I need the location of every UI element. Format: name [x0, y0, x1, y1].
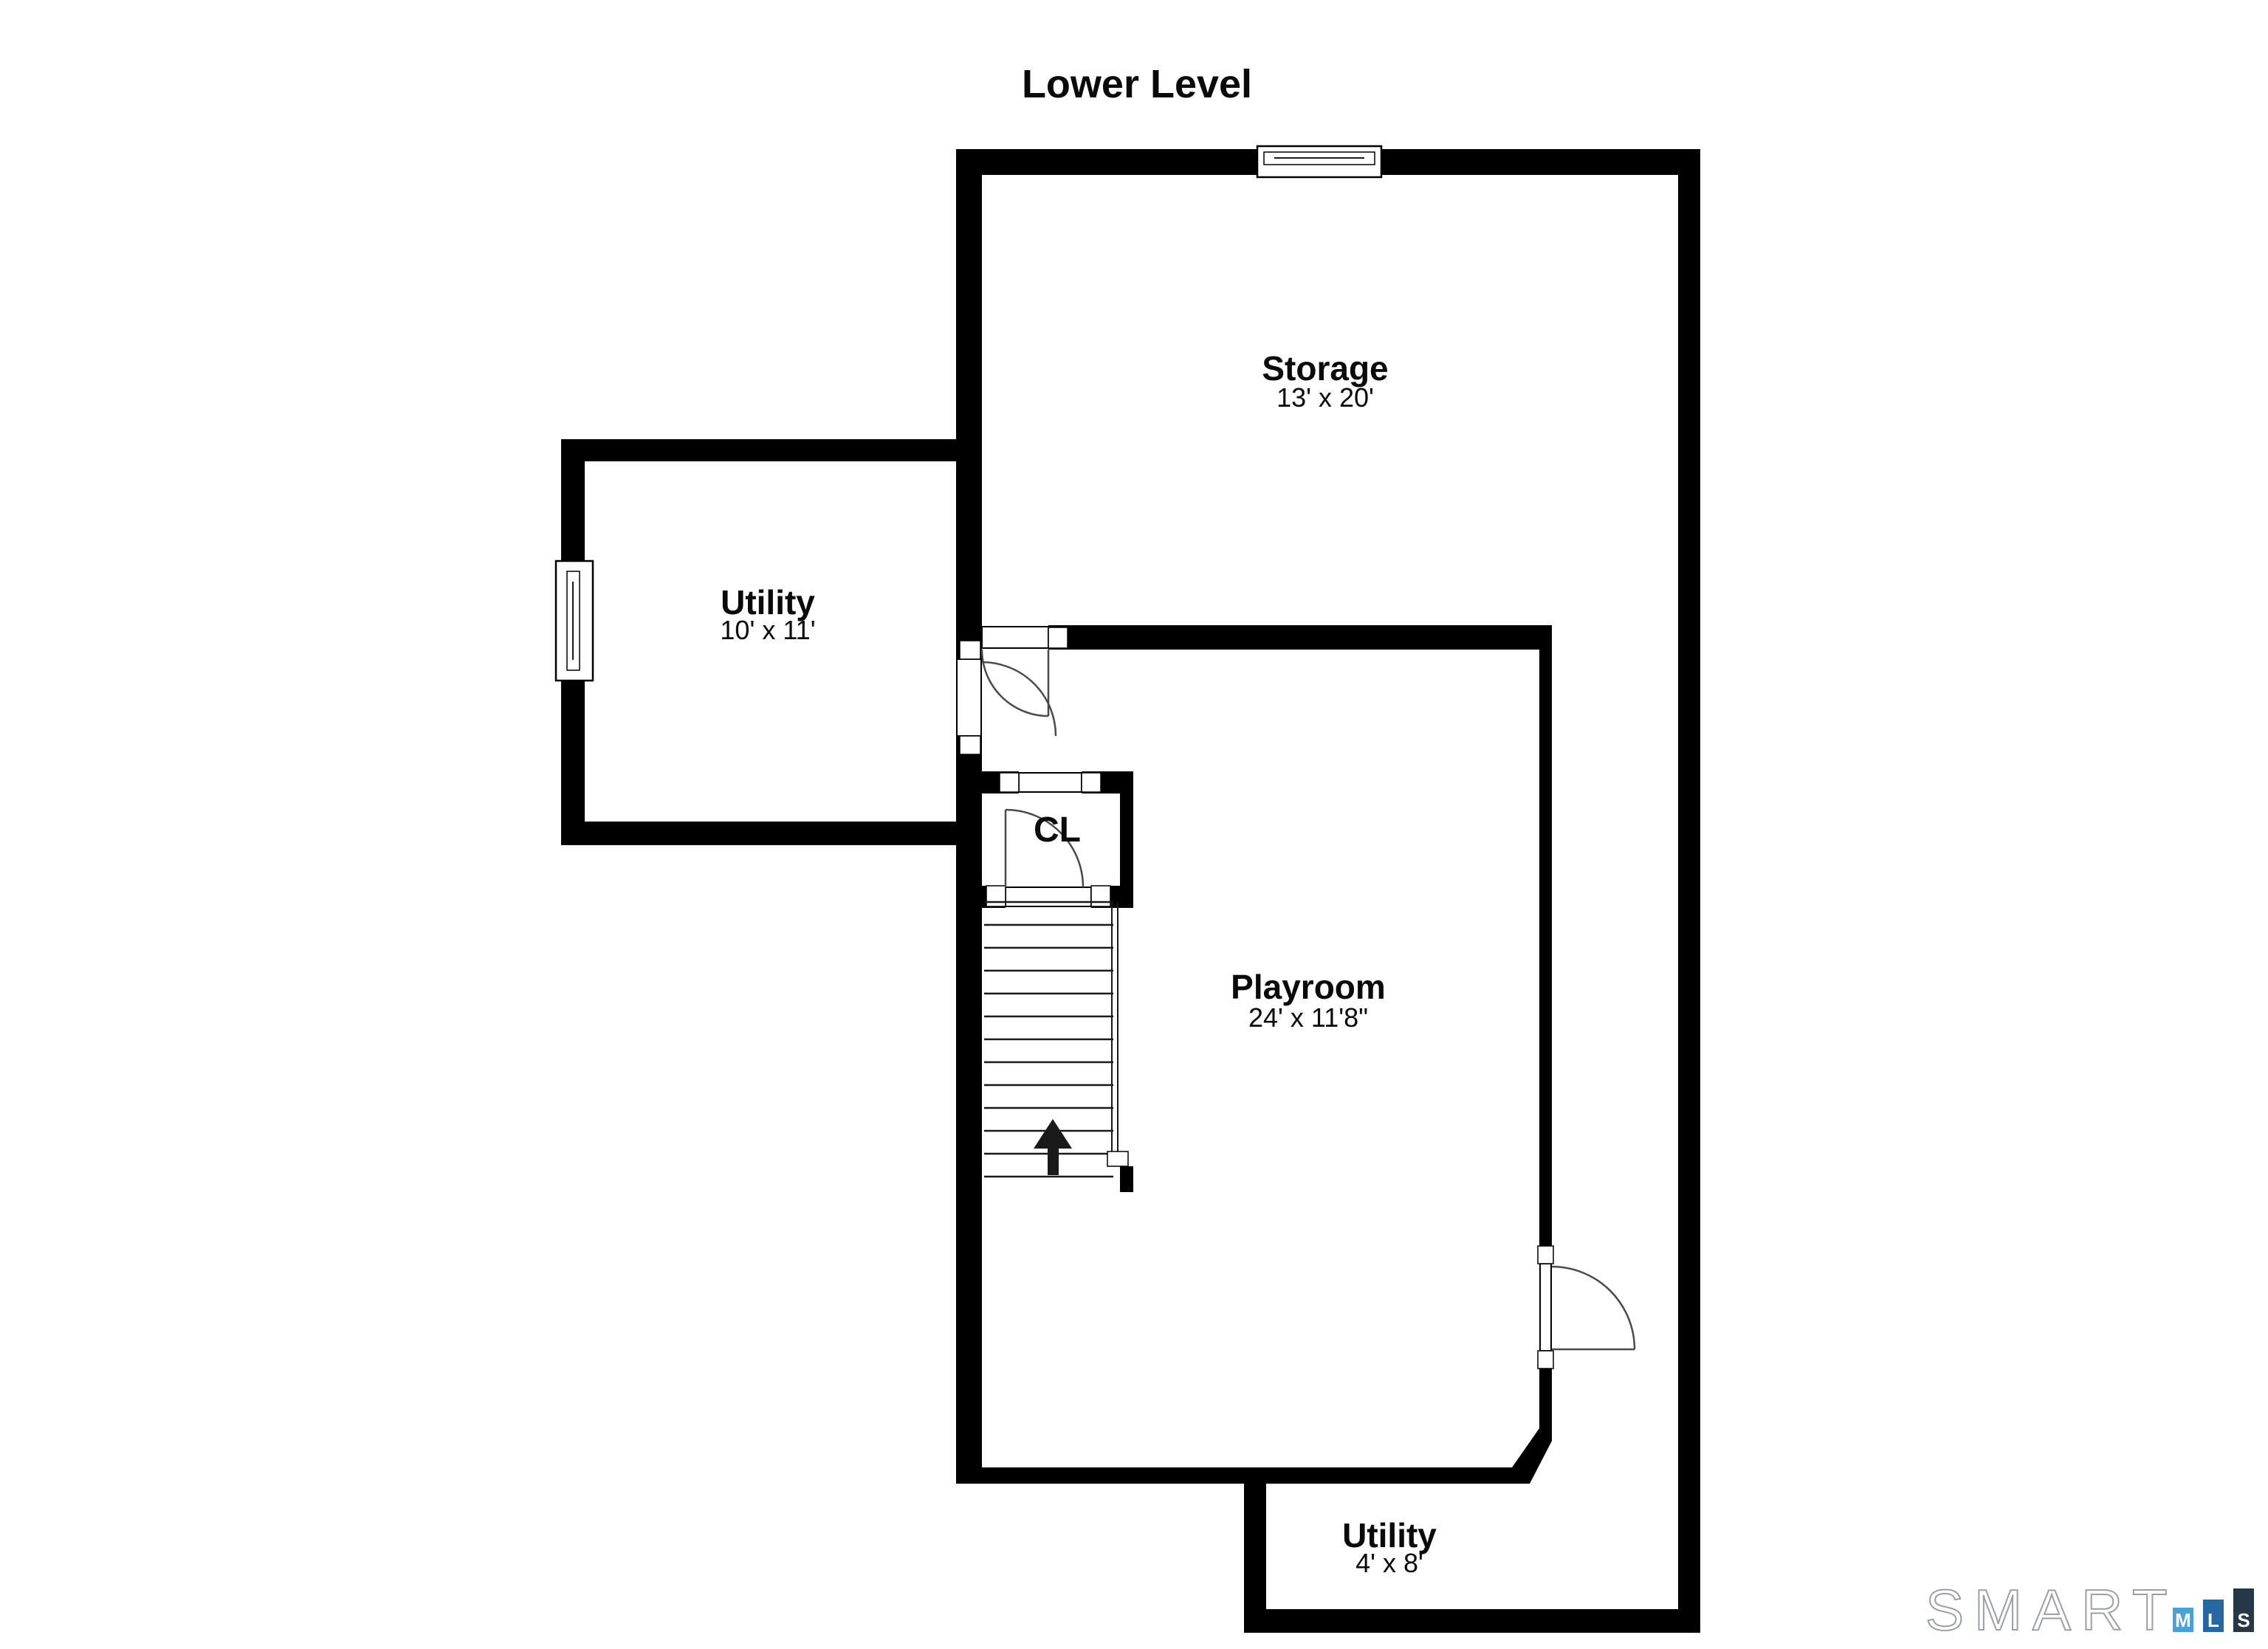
utility-door-jamb-top — [960, 641, 980, 659]
door-playroom — [1538, 1246, 1635, 1369]
main-left-wall-lower — [956, 736, 982, 1484]
playroom-top-wall — [1048, 625, 1552, 650]
utility-left-wall-upper — [561, 439, 585, 562]
window-left — [556, 561, 593, 681]
floor-plan-drawing: Lower Level Storage 13' x 20' Utility 10… — [0, 0, 2268, 1649]
closet-bottom-jamb-left — [986, 886, 1006, 906]
utility-door-arc — [982, 662, 1056, 736]
playroom-door-jamb-top — [1538, 1246, 1553, 1264]
smart-logo-wordmark: SMART — [1925, 1577, 2178, 1642]
door-storage-to-hall — [982, 627, 1068, 716]
storage-top-wall-right — [1379, 149, 1700, 175]
utility-top-wall — [561, 439, 967, 461]
stair-stub-wall — [1120, 1166, 1133, 1192]
stairs-up-arrow-shaft — [1048, 1149, 1059, 1175]
room-dims-playroom: 24' x 11'8" — [1248, 1002, 1368, 1033]
storage-door-arc — [982, 650, 1048, 716]
mls-letter-s: S — [2237, 1609, 2250, 1631]
storage-door-jamb — [1048, 627, 1068, 648]
storage-door-opening — [982, 627, 1048, 648]
mls-letter-m: M — [2175, 1609, 2191, 1631]
playroom-right-wall-upper — [1539, 625, 1552, 1264]
floor-plan-page: Lower Level Storage 13' x 20' Utility 10… — [0, 0, 2268, 1649]
mls-letter-l: L — [2207, 1609, 2219, 1631]
playroom-door-arc — [1552, 1267, 1635, 1349]
utility-door-opening — [957, 659, 981, 736]
room-label-closet: CL — [1034, 810, 1081, 850]
door-utility-to-hall — [957, 641, 1056, 754]
staircase — [984, 902, 1128, 1177]
labels: Lower Level Storage 13' x 20' Utility 10… — [720, 62, 1437, 1578]
closet-top-jamb-left — [1000, 773, 1019, 792]
stairs-up-arrow-head — [1034, 1119, 1072, 1149]
lower-utility-left-wall — [1244, 1467, 1266, 1633]
utility-left-wall-lower — [561, 679, 585, 845]
closet-top-opening — [1019, 773, 1082, 792]
main-left-wall-upper — [956, 149, 982, 659]
closet-right-wall — [1120, 771, 1133, 908]
plan-title: Lower Level — [1022, 62, 1252, 106]
room-dims-utility-lower: 4' x 8' — [1355, 1548, 1423, 1578]
bottom-wall — [1244, 1609, 1700, 1633]
room-label-playroom: Playroom — [1231, 968, 1386, 1006]
playroom-door-opening — [1540, 1264, 1551, 1351]
playroom-door-jamb-bottom — [1538, 1351, 1553, 1369]
room-dims-utility-upper: 10' x 11' — [720, 615, 815, 645]
stair-rail-jamb — [1107, 1151, 1128, 1166]
smartmls-logo: SMART M L S — [1925, 1577, 2254, 1642]
utility-bottom-wall — [561, 822, 956, 845]
closet-bottom-jamb-right — [1091, 886, 1110, 906]
utility-door-jamb-bottom — [960, 736, 980, 754]
room-dims-storage: 13' x 20' — [1276, 382, 1374, 413]
closet-bottom-opening — [1006, 887, 1091, 906]
closet-top-jamb-right — [1082, 773, 1101, 792]
window-top — [1257, 146, 1381, 177]
outer-right-wall — [1678, 149, 1700, 1633]
storage-top-wall-left — [956, 149, 1259, 175]
walls — [561, 149, 1700, 1633]
